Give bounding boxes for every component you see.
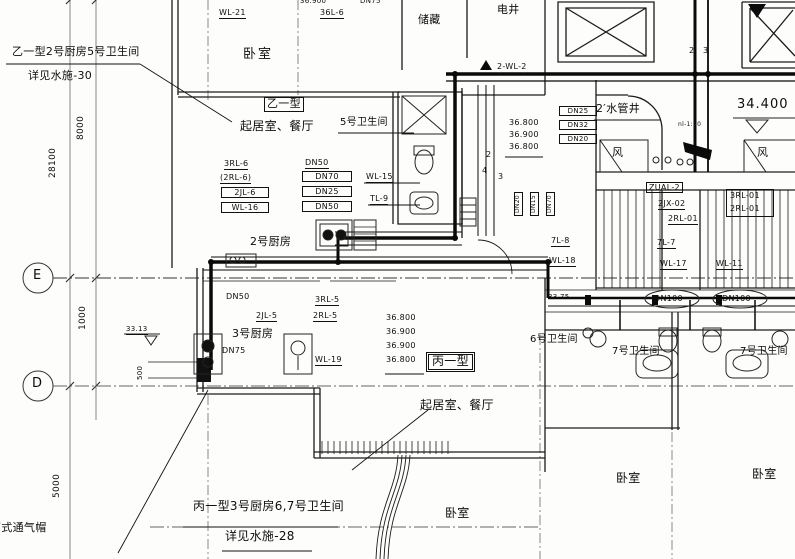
riser-zual2: ZUAL-2 [646,182,683,193]
riser-3rl01: 3RL-01 [730,191,760,200]
dn-25-mid: DN25 [302,186,352,197]
riser-wl19: WL-19 [315,355,342,366]
dn-15-vert: DN15 [530,192,539,216]
pipe-num-r2: 2 [486,150,491,159]
riser-2jl6: 2JL-6 [221,187,269,198]
dn-75-top: DN75 [360,0,381,5]
elev-k3-4: 36.800 [386,355,416,364]
dn-32-shaft: DN32 [559,120,597,130]
pipes [203,0,795,370]
dn-75-k3: DN75 [222,346,246,355]
pipe-marker-triangle [480,60,492,70]
riser-wl15: WL-15 [366,172,393,183]
corner-marker-triangle [748,4,766,18]
fan-box-right [744,140,795,172]
elevation-3313: 33.13 [126,325,148,335]
dim-28100: 28100 [48,148,58,178]
room-storage: 储藏 [418,14,441,27]
dn-50-k3: DN50 [226,292,250,301]
note-bottom-line1: 丙一型3号厨房6,7号卫生间 [193,500,344,514]
walls [148,0,795,559]
pipe-num-r3: 3 [498,172,503,181]
note-bottom-line2: 详见水施-28 [225,530,295,544]
room-elec-shaft: 电井 [497,4,520,17]
riser-2rl01b: 2RL-01 [730,204,760,213]
room-bedroom-left: 卧室 [616,472,641,486]
riser-3rl6: 3RL-6 [224,159,248,170]
scale-note: nl-1:50 [678,122,701,129]
dim-500: 500 [136,366,144,380]
pipe-num-2: 2 [689,46,694,55]
room-water-shaft: 2′水管井 [596,103,640,116]
riser-7l8: 7L-8 [551,236,570,247]
note-top-left-line1: 乙一型2号厨房5号卫生间 [12,46,140,59]
elev-shaft-3: 36.800 [509,142,539,151]
room-bath7-right: 7号卫生间 [740,346,788,358]
riser-tl9: TL-9 [370,194,388,205]
room-bath5: 5号卫生间 [340,117,388,129]
elev-k3-2: 36.900 [386,327,416,336]
room-kitchen2: 2号厨房 [250,236,291,249]
riser-2rl01a: 2RL-01 [668,214,698,225]
riser-3rl5: 3RL-5 [315,295,339,306]
floor-plan: 乙一型2号厨房5号卫生间 详见水施-30 丙一型3号厨房6,7号卫生间 详见水施… [0,0,795,559]
room-living-c: 起居室、餐厅 [420,399,494,413]
elevation-triangle-34400 [746,120,768,133]
unit-b-tag: 乙一型 [264,97,304,112]
riser-wl11: WL-11 [716,259,743,270]
toilet-symbol [415,150,433,174]
dn-20-shaft: DN20 [559,134,597,144]
elev-k3-1: 36.800 [386,313,416,322]
room-bedroom-right: 卧室 [752,468,777,482]
riser-wl21: WL-21 [219,8,246,19]
note-top-left-line2: 详见水施-30 [28,70,92,83]
toilet-right [703,330,721,352]
dn-50-top: DN50 [305,158,329,169]
elev-shaft-1: 36.800 [509,118,539,127]
sink-symbol [410,192,438,214]
dn-100-right: DN100 [722,294,751,303]
grid-label-d: D [32,377,42,392]
riser-2rl5: 2RL-5 [313,311,337,322]
pipe-num-r4: 4 [482,166,487,175]
riser-2jx02: 2JX-02 [658,199,685,210]
dn-70-vert: DN70 [546,192,555,216]
toilet-left [659,330,677,352]
dim-5000: 5000 [52,474,62,498]
dn-25-shaft: DN25 [559,106,597,116]
fan-label-left: 风 [612,147,623,160]
room-bedroom-c: 卧室 [445,507,470,521]
plan-linework [0,0,795,559]
dn-50-bot: DN50 [302,201,352,212]
elevation-3375: 33.75 [548,293,570,301]
elevation-34400: 34.400 [737,98,789,113]
dn-100-left: DN100 [654,294,683,303]
room-bath7-left: 7号卫生间 [612,346,660,358]
riser-wl18: WL-18 [549,256,576,267]
riser-36l6: 36L-6 [320,8,344,19]
riser-2jl5: 2JL-5 [256,311,277,322]
fan-label-right: 风 [757,147,768,160]
room-kitchen3: 3号厨房 [232,328,273,341]
pipe-num-3: 3 [703,46,708,55]
riser-2rl6: (2RL-6) [220,173,251,184]
unit-c-tag: 丙一型 [428,354,473,370]
elevation-36900-top: 36.900 [300,0,326,5]
fan-box-left [600,140,648,172]
elev-shaft-2: 36.900 [509,130,539,139]
room-living-b: 起居室、餐厅 [240,120,314,134]
riser-wl16: WL-16 [221,202,269,213]
dn-20-vert: DN20 [514,192,523,216]
room-bedroom-top: 卧室 [243,48,273,63]
riser-wl17: WL-17 [660,259,687,270]
dn-70: DN70 [302,171,352,182]
dim-1000: 1000 [78,306,88,330]
grid-label-e: E [33,269,42,284]
riser-2wl2: 2-WL-2 [497,62,527,71]
elev-k3-3: 36.900 [386,341,416,350]
elevation-triangle-3313 [145,336,157,345]
dim-8000: 8000 [76,116,86,140]
grid-lines [23,0,795,559]
riser-7l7: 7L-7 [657,238,676,249]
shower-symbol [402,96,446,134]
room-bath6: 6号卫生间 [530,334,578,346]
note-vent-cap: 筒式通气帽 [0,522,47,535]
